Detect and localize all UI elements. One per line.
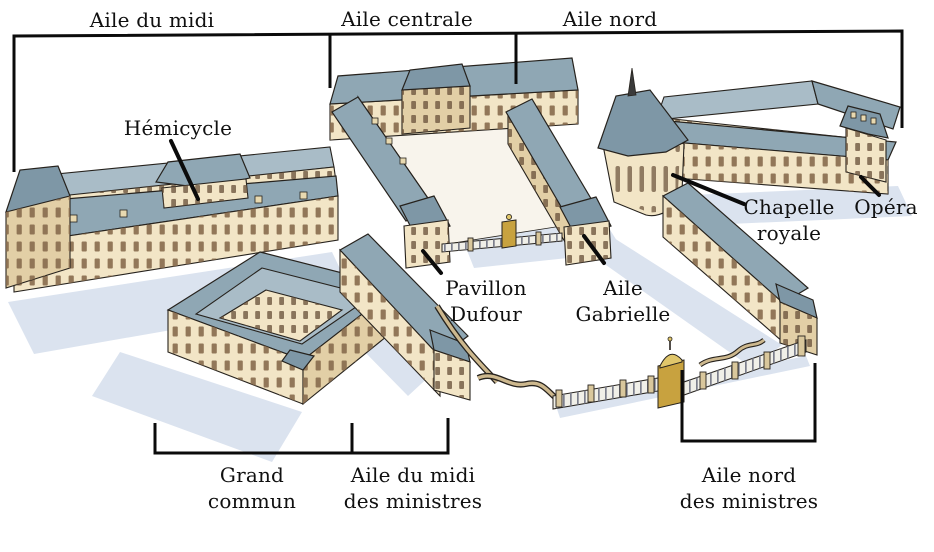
label-grand-commun: Grand commun [208,462,296,514]
golden-gate [658,337,684,408]
label-aile-gabrielle: Aile Gabrielle [576,275,671,327]
building-hemicycle [156,154,250,208]
label-aile-nord-des-ministres: Aile nord des ministres [680,462,818,514]
versailles-diagram: Aile du midi Aile centrale Aile nord Hém… [0,0,934,552]
label-hemicycle: Hémicycle [124,115,232,141]
label-opera: Opéra [854,194,918,220]
label-chapelle-royale: Chapelle royale [744,194,835,246]
label-aile-nord: Aile nord [563,6,658,32]
building-aile-gabrielle [560,197,611,265]
building-aile-centrale [330,58,611,268]
label-aile-du-midi-des-ministres: Aile du midi des ministres [344,462,482,514]
label-aile-centrale: Aile centrale [341,6,473,32]
building-opera [840,106,888,182]
label-pavillon-dufour: Pavillon Dufour [445,275,527,327]
label-aile-du-midi: Aile du midi [90,7,214,33]
